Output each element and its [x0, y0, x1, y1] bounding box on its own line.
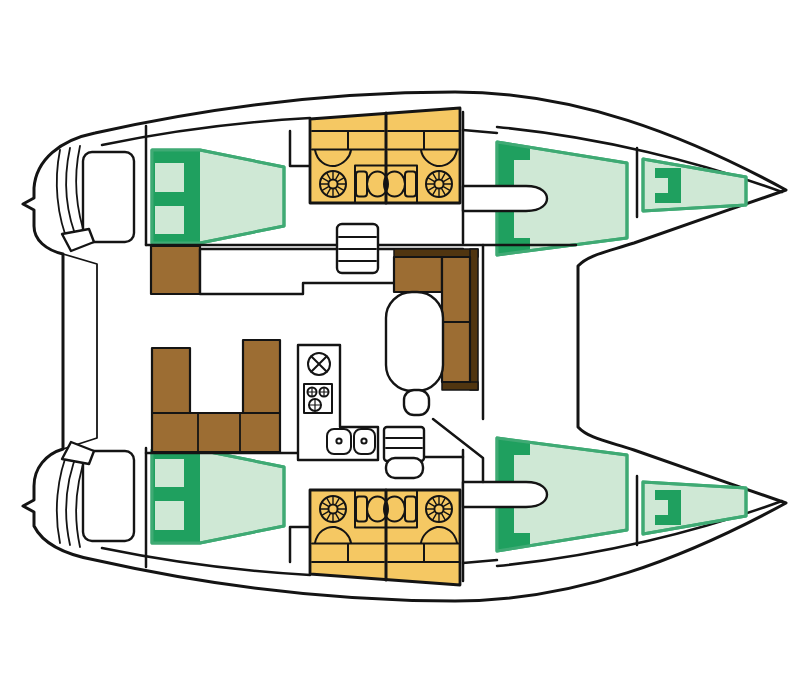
sofa-cushion [442, 257, 470, 322]
cabin-entry-walkway: Cabin entry walkway [463, 186, 547, 211]
nav-seat: Navigation seat [151, 246, 200, 294]
sofa-cushion [442, 322, 470, 382]
floor-plan-canvas: Catamaran hull outline Transom steps and… [0, 0, 800, 700]
stair-bottom-tread [386, 458, 423, 478]
swim-platform [83, 152, 134, 242]
stool-seat: Seat [404, 390, 429, 415]
companionway-steps: Companionway steps [337, 224, 378, 273]
sofa-backrest [442, 382, 478, 390]
sofa-backrest [394, 249, 478, 257]
hull-access-steps: Hull access steps [384, 427, 424, 478]
headboard-notch [155, 163, 184, 192]
headboard-notch [514, 212, 530, 238]
cabin-aft-berth: Double berth cabin (aft) [152, 150, 284, 243]
sofa-backrest [470, 249, 478, 390]
stair-box [384, 427, 424, 461]
headboard-notch [155, 206, 184, 234]
sofa-cushion [394, 257, 442, 292]
salon-table: Salon table [386, 292, 443, 391]
bathroom-block: Bathroom head compartment Washbasin Show… [310, 108, 460, 203]
floor-plan: Catamaran hull outline Transom steps and… [0, 0, 800, 700]
headboard-notch [514, 160, 530, 186]
